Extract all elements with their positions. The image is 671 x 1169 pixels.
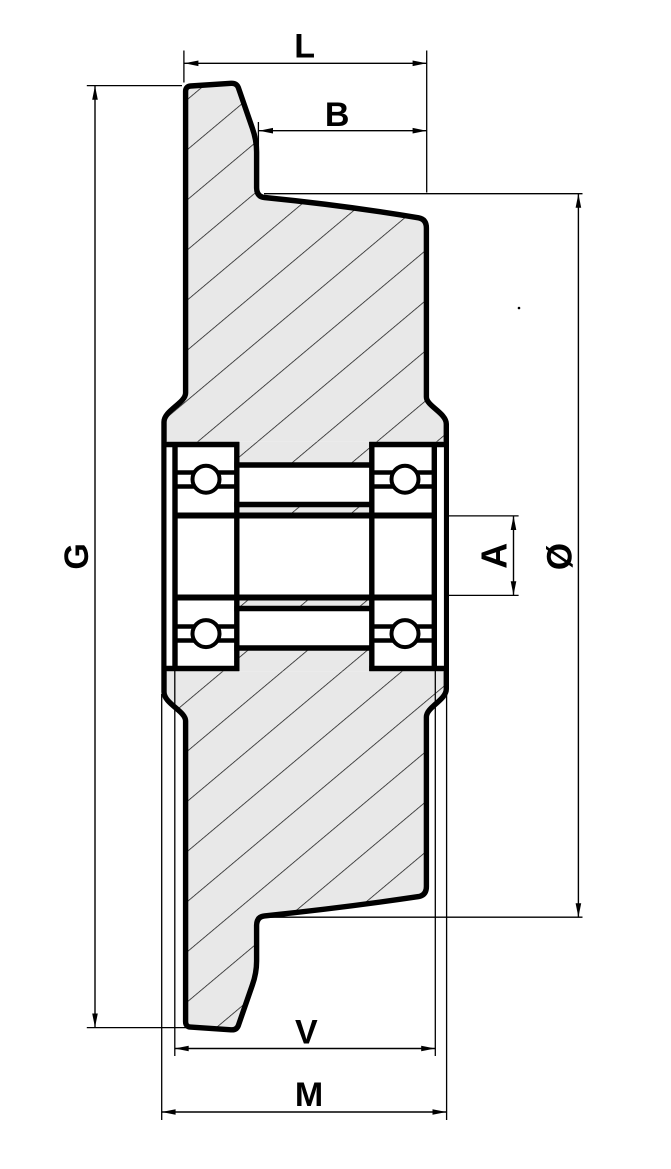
- svg-text:B: B: [325, 96, 350, 134]
- svg-text:M: M: [295, 1076, 323, 1114]
- svg-text:Ø: Ø: [541, 543, 580, 570]
- svg-text:A: A: [474, 543, 515, 569]
- svg-text:G: G: [58, 543, 96, 569]
- svg-text:L: L: [294, 27, 315, 65]
- svg-text:V: V: [295, 1014, 318, 1052]
